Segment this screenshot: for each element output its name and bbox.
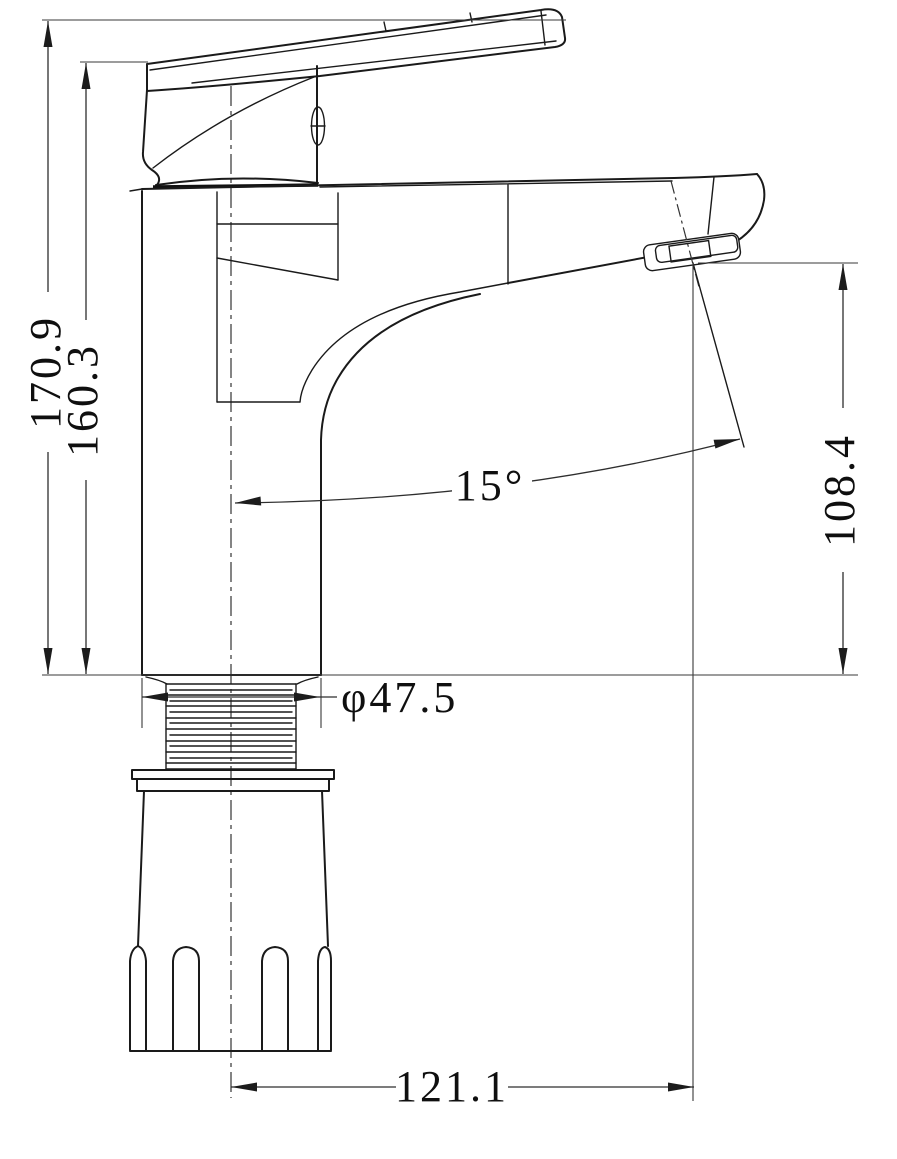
handle-base-top-curve — [153, 77, 314, 168]
thread-section — [146, 677, 318, 769]
faucet-dimension-drawing: 170.9 160.3 108.4 15° φ47.5 — [0, 0, 897, 1159]
spout-stream-line — [693, 263, 744, 447]
handle-base-left — [143, 90, 159, 185]
dim-spout-reach-label: 121.1 — [395, 1062, 509, 1111]
dim-spout-outlet-height: 108.4 — [698, 263, 864, 674]
locknut-finger-4 — [318, 947, 331, 1050]
dim-body-height: 160.3 — [58, 62, 148, 674]
faucet-handle — [143, 9, 565, 185]
deck-ledge — [130, 189, 142, 191]
faucet-body — [130, 185, 508, 675]
locknut-left-wall — [138, 791, 144, 946]
flange-lip — [132, 770, 334, 779]
locknut-finger-1 — [130, 946, 146, 1050]
handle-lever-tick — [384, 22, 386, 31]
dim-spout-angle: 15° — [235, 439, 740, 510]
aerator — [643, 232, 742, 271]
technical-drawing-canvas: 170.9 160.3 108.4 15° φ47.5 — [0, 0, 897, 1159]
faucet-spout — [142, 174, 764, 287]
dim-spout-angle-label: 15° — [455, 461, 526, 510]
dim-spout-reach: 121.1 — [231, 1062, 694, 1111]
dim-spout-outlet-height-label: 108.4 — [815, 433, 864, 547]
locknut-finger-3 — [262, 947, 288, 1050]
spout-endcap-division — [708, 177, 714, 234]
aerator-outer — [643, 232, 742, 271]
flange-plate — [137, 779, 329, 791]
mounting-flange — [132, 770, 334, 791]
locknut-right-wall — [322, 791, 328, 946]
dim-body-height-label: 160.3 — [58, 343, 107, 457]
spout-endcap — [737, 174, 764, 241]
locknut-finger-2 — [173, 947, 199, 1050]
cartridge-slant — [217, 258, 338, 280]
dim-thread-diameter-label: φ47.5 — [341, 673, 458, 722]
body-transition-curve — [300, 283, 508, 402]
